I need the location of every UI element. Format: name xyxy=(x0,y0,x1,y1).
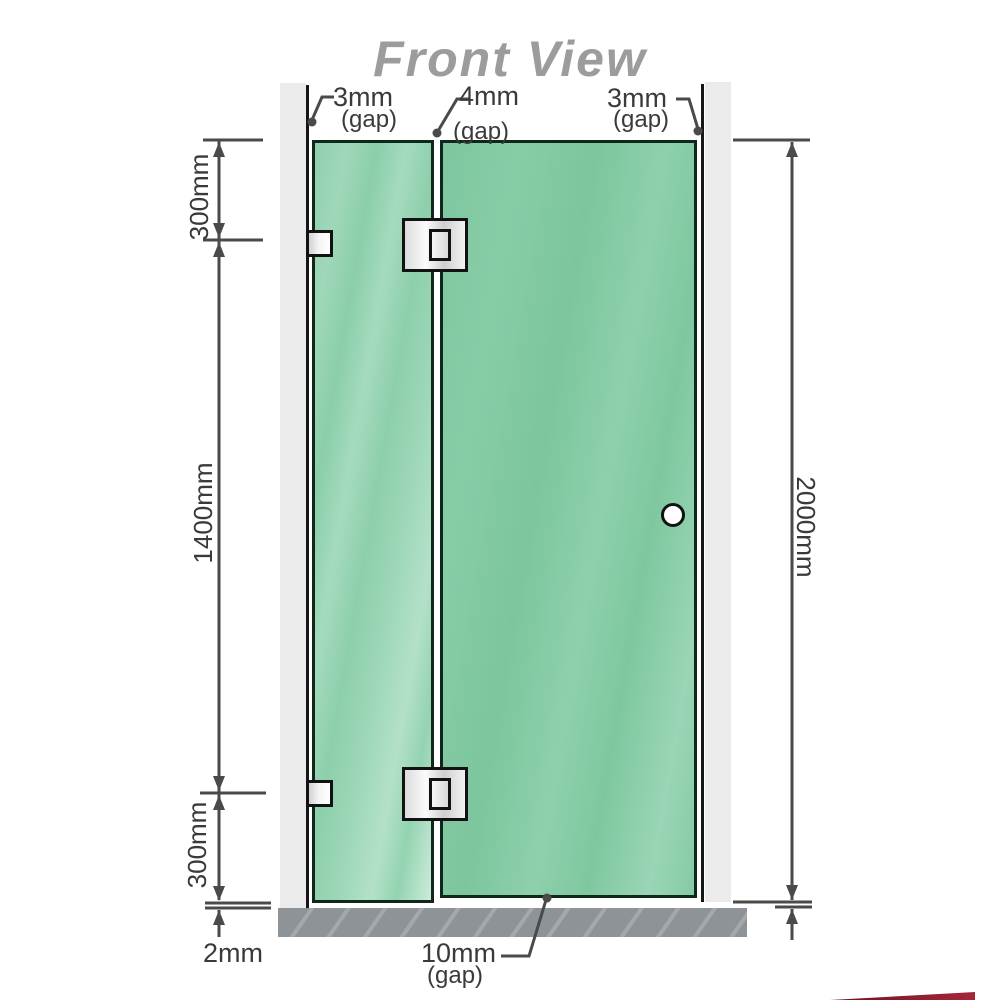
gap-label-top-middle-note: (gap) xyxy=(453,120,509,144)
leader-gap-bottom xyxy=(501,900,546,956)
front-view-diagram: Front View xyxy=(0,0,1000,1000)
gap-label-bottom-note: (gap) xyxy=(427,964,483,988)
gap-label-top-middle-value: 4mm xyxy=(459,83,519,110)
gap-label-top-right-note: (gap) xyxy=(613,108,669,132)
dimension-label-overall-height: 2000mm xyxy=(793,476,819,577)
dimension-label-floor-gap: 2mm xyxy=(203,940,263,967)
dimension-label-left-middle: 1400mm xyxy=(190,462,216,563)
gap-label-top-left-note: (gap) xyxy=(341,108,397,132)
dimension-label-left-top: 300mm xyxy=(186,154,212,241)
leader-gap-top-right xyxy=(676,99,698,129)
leader-gap-top-left xyxy=(312,97,334,120)
dimension-label-left-bottom: 300mm xyxy=(184,802,210,889)
dimension-annotations xyxy=(0,0,1000,1000)
